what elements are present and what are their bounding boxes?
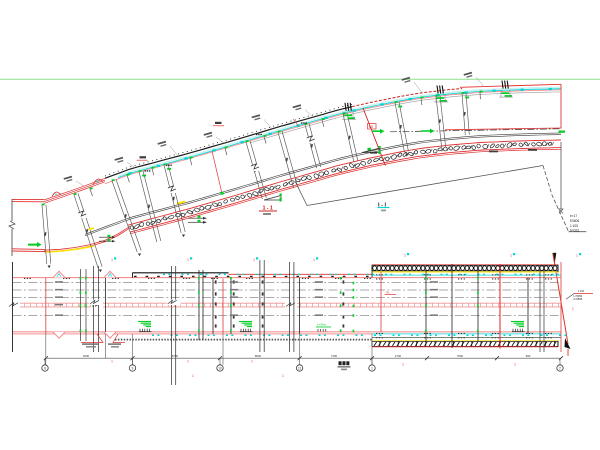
svg-text:7456: 7456 xyxy=(331,354,338,358)
svg-text:1 8-8: 1 8-8 xyxy=(578,289,584,293)
svg-text:e=17: e=17 xyxy=(570,214,577,218)
svg-text:7500: 7500 xyxy=(457,354,464,358)
svg-text:8000: 8000 xyxy=(255,354,262,358)
svg-text:1: 1 xyxy=(187,258,189,262)
svg-text:b=5506: b=5506 xyxy=(574,297,583,301)
svg-text:8750: 8750 xyxy=(172,354,179,358)
svg-text:1: 1 xyxy=(572,307,574,311)
svg-text:b=023: b=023 xyxy=(570,229,579,233)
svg-text:1: 1 xyxy=(514,363,516,367)
svg-text:1: 1 xyxy=(192,374,194,378)
svg-text:E0606: E0606 xyxy=(570,219,579,223)
svg-text:1: 1 xyxy=(576,254,578,258)
svg-text:2: 2 xyxy=(559,366,561,370)
svg-text:L=30m: L=30m xyxy=(317,323,327,327)
svg-text:1: 1 xyxy=(510,254,512,258)
svg-text:9: 9 xyxy=(132,366,134,370)
svg-text:1: 1 xyxy=(371,366,373,370)
svg-text:1: 1 xyxy=(251,359,253,363)
svg-text:1: 1 xyxy=(253,258,255,262)
svg-text:7%: 7% xyxy=(386,290,391,294)
svg-text:1: 1 xyxy=(282,374,284,378)
svg-text:1: 1 xyxy=(111,258,113,262)
svg-text:1: 1 xyxy=(402,363,404,367)
svg-text:1:8: 1:8 xyxy=(369,125,374,129)
svg-text:8: 8 xyxy=(44,366,46,370)
svg-text:1:105: 1:105 xyxy=(570,224,578,228)
svg-text:2700: 2700 xyxy=(395,354,402,358)
svg-text:11: 11 xyxy=(298,366,302,370)
svg-text:1: 1 xyxy=(404,254,406,258)
svg-text:10: 10 xyxy=(218,366,222,370)
svg-text:4500: 4500 xyxy=(83,354,90,358)
svg-text:1: 1 xyxy=(313,258,315,262)
svg-text:1: 1 xyxy=(111,359,113,363)
svg-text:380: 380 xyxy=(526,354,531,358)
svg-text:1: 1 xyxy=(187,359,189,363)
